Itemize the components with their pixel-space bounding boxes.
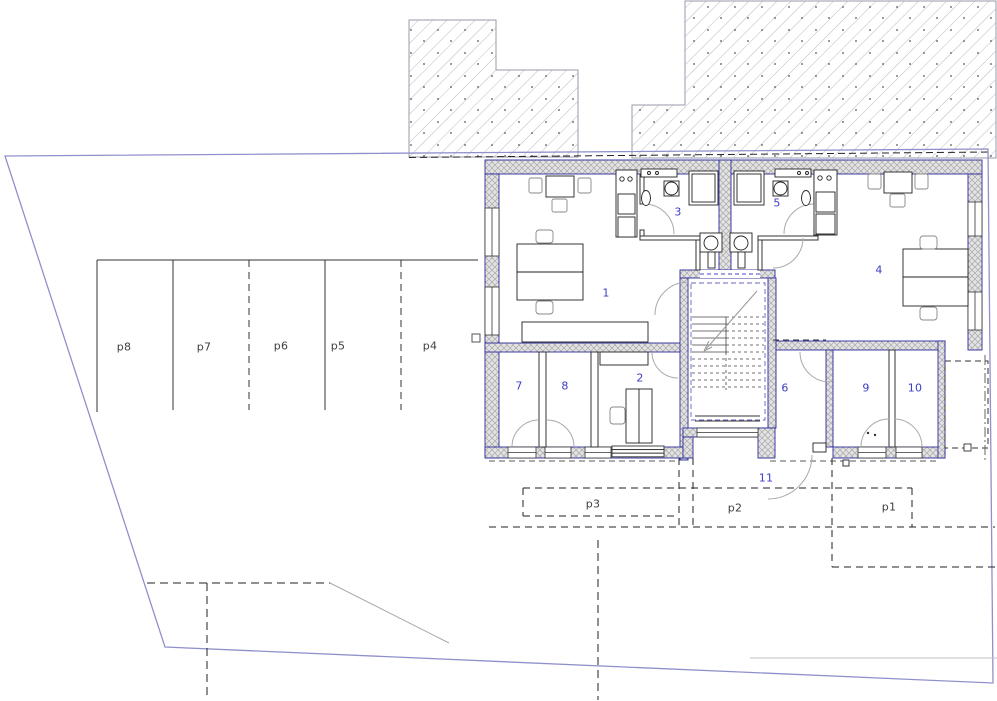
room-label-10: 10 <box>908 383 922 394</box>
boundary-marker-square <box>472 334 480 342</box>
floor-plan-canvas: 1 2 3 4 5 6 7 8 9 10 11 p1 p2 p3 p4 p5 p… <box>0 0 997 701</box>
room1-desk <box>517 244 583 300</box>
room4-kitchen-unit <box>814 170 837 235</box>
bath5-toilet <box>730 233 752 268</box>
site-dashed-lines <box>147 461 940 700</box>
room2-chair <box>610 407 625 424</box>
door-arc-room9 <box>861 419 889 447</box>
parking-label-p4: p4 <box>423 341 437 352</box>
window-left-2 <box>485 287 499 335</box>
door-arc-room2 <box>652 352 678 378</box>
window-south-10 <box>896 447 922 458</box>
room-label-11: 11 <box>759 473 773 484</box>
window-south-7 <box>508 447 536 458</box>
floor-plan-drawing <box>0 0 997 701</box>
partition-walls <box>539 174 895 447</box>
bath3-sink <box>664 181 679 196</box>
bath3-wall-sink <box>642 191 651 206</box>
porch-steps <box>612 446 664 457</box>
parking-label-p2: p2 <box>728 503 742 514</box>
window-south-8 <box>545 447 571 458</box>
door-arc-room3 <box>644 204 674 234</box>
furniture <box>517 169 968 466</box>
window-right-1 <box>968 202 982 236</box>
east-terrace-dashed <box>773 340 988 462</box>
room1-sideboard <box>522 322 648 342</box>
entry-door <box>697 428 758 437</box>
room-label-1: 1 <box>602 288 609 299</box>
door-arc-entrance <box>768 455 812 499</box>
stair-direction-arrow <box>704 291 757 351</box>
bath5-shower <box>734 171 764 205</box>
room-label-4: 4 <box>875 265 882 276</box>
room-label-3: 3 <box>674 207 681 218</box>
door-arc-room6 <box>800 352 830 382</box>
parking-label-p3: p3 <box>586 499 600 510</box>
bath5-sink <box>773 181 788 196</box>
bath3-shower <box>689 171 718 205</box>
bath5-wall-sink <box>802 191 811 206</box>
door-south-2 <box>585 447 611 458</box>
room-label-7: 7 <box>515 381 522 392</box>
room4-desk <box>903 249 968 306</box>
room-label-6: 6 <box>781 383 788 394</box>
parking-label-p1: p1 <box>882 502 896 513</box>
site-gray-lines <box>330 583 997 658</box>
door-arc-room4 <box>773 238 803 268</box>
door-arc-room10 <box>894 419 922 447</box>
window-south-9 <box>858 447 886 458</box>
parking-label-p8: p8 <box>117 342 131 353</box>
door-arc-room8 <box>547 420 574 447</box>
room2-desk <box>626 389 652 443</box>
room-label-5: 5 <box>773 198 780 209</box>
parking-label-p6: p6 <box>274 341 288 352</box>
room-label-8: 8 <box>561 381 568 392</box>
room-label-2: 2 <box>636 373 643 384</box>
room9-dots <box>867 432 876 436</box>
bath3-counter <box>641 169 677 177</box>
room1-dining-table <box>546 176 574 197</box>
parking-label-p5: p5 <box>331 341 345 352</box>
parking-label-p7: p7 <box>197 342 211 353</box>
neighbor-building-left-hatch <box>409 20 578 157</box>
room-label-9: 9 <box>862 383 869 394</box>
staircase <box>691 283 765 421</box>
bath5-counter <box>775 169 811 177</box>
parking-west-block <box>97 260 478 412</box>
door-arc-room5 <box>784 204 814 234</box>
door-arc-room7 <box>512 420 539 447</box>
room4-dining-table <box>884 172 912 193</box>
neighbor-building-right-hatch <box>632 1 996 158</box>
window-right-2 <box>968 292 982 330</box>
window-left-1 <box>485 208 499 256</box>
room1-kitchen-unit <box>616 170 637 237</box>
